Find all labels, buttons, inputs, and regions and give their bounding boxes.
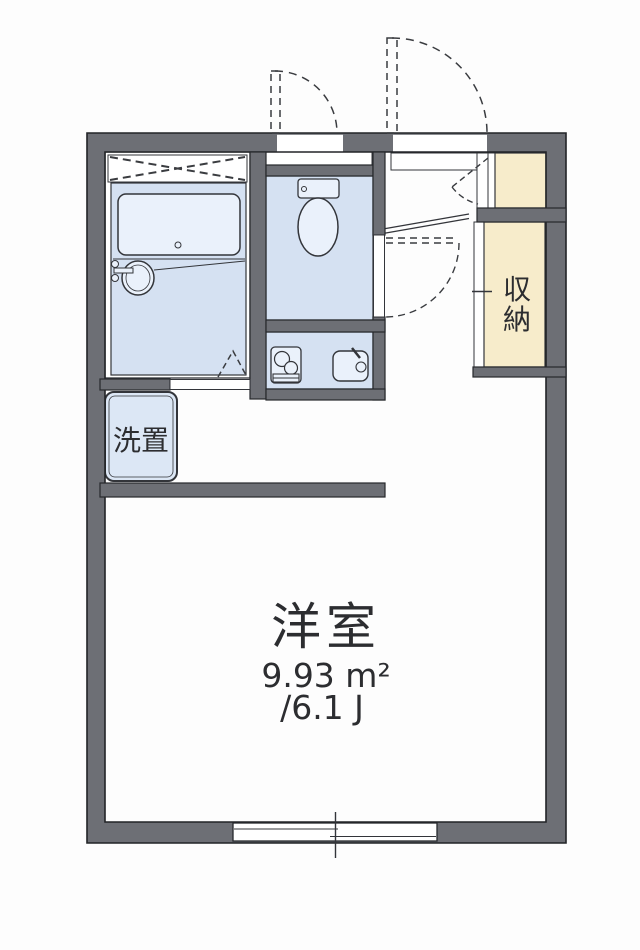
main-room-label: 洋室 [271, 598, 381, 656]
wall-closet-top-stub [477, 208, 566, 222]
toilet-bowl [298, 198, 338, 256]
bathroom-door-opening [170, 380, 250, 390]
wall-toilet-right-upper [373, 152, 385, 235]
wall-closet-bottom-stub [473, 367, 566, 377]
main-room-area-tatami: /6.1 J [280, 688, 364, 727]
laundry-label: 洗置 [113, 424, 169, 457]
kitchen [266, 332, 373, 389]
closet-label-char-2: 納 [503, 303, 531, 336]
sink-drain [356, 362, 366, 372]
floorplan-canvas: 洋室 9.93 m² /6.1 J 洗置 収 納 [0, 0, 640, 950]
wall-room-divider-stub [100, 483, 385, 497]
wall-kitchen-bottom [266, 389, 385, 400]
bathtub-drain [175, 242, 181, 248]
unit-bath [105, 152, 250, 378]
floorplan-drawing: 洋室 9.93 m² /6.1 J 洗置 収 納 [0, 0, 640, 950]
basin-faucet-arm [114, 268, 133, 273]
wall-toilet-bottom [266, 320, 385, 332]
genkan-threshold [391, 153, 487, 170]
closet-door-strip [474, 222, 484, 367]
wall-toilet-top [266, 165, 373, 176]
shoe-cabinet [495, 153, 546, 208]
stove-burner-small [285, 362, 298, 375]
basin-tap-cold [112, 275, 119, 282]
shoe-cabinet-front [477, 153, 495, 208]
toilet-room [265, 152, 373, 320]
washbasin [122, 261, 154, 295]
closet-label-char-1: 収 [503, 273, 531, 306]
wall-bath-toilet [250, 152, 266, 399]
basin-tap-hot [112, 261, 119, 268]
wall-bath-bottom [100, 379, 170, 390]
pipe-space-niche [265, 152, 372, 165]
toilet-door-opening [374, 235, 385, 317]
entrance-door-opening [393, 135, 487, 151]
toilet-tank [298, 179, 339, 198]
ps-door-opening [277, 135, 343, 151]
